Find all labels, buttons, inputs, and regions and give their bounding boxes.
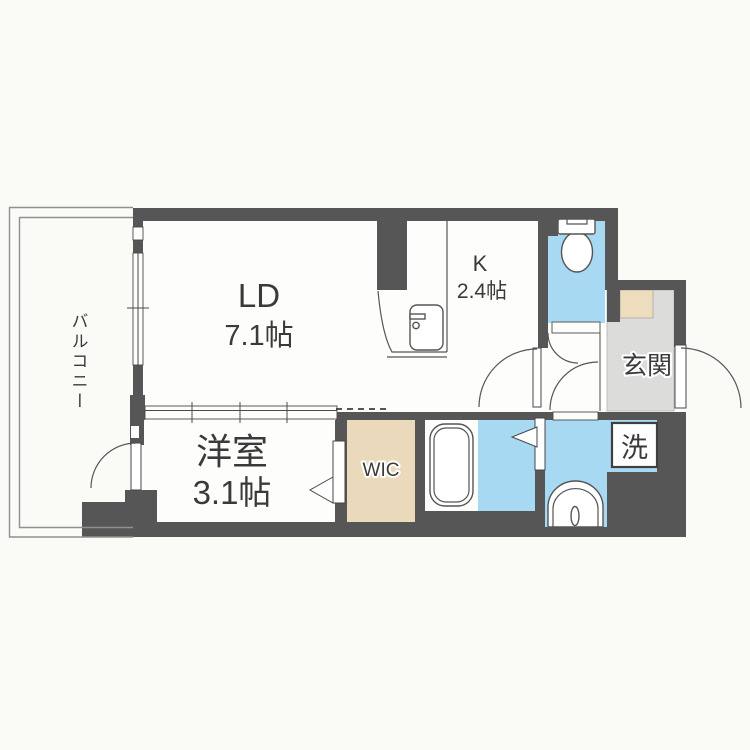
toilet-icon bbox=[562, 232, 593, 272]
wall-toilet-nub bbox=[548, 218, 558, 236]
washbasin-handle-icon bbox=[571, 507, 579, 526]
living-dining-size: 7.1帖 bbox=[224, 319, 293, 352]
bathtub-icon bbox=[430, 424, 473, 506]
wic-door-panel bbox=[333, 441, 345, 503]
sliding-door-icon bbox=[145, 406, 337, 419]
western-room-label: 洋室 bbox=[196, 431, 268, 472]
balcony-door-swing-arc bbox=[91, 443, 136, 488]
front-door-swing-arc bbox=[681, 348, 741, 408]
kitchen-faucet-knob-icon bbox=[413, 322, 419, 328]
wic-label: WIC bbox=[363, 460, 400, 481]
wall-balcony-block-2 bbox=[82, 502, 125, 537]
wall-right-block bbox=[657, 412, 686, 537]
wall-middle bbox=[336, 412, 686, 420]
balcony-label: バルコニー bbox=[69, 312, 88, 412]
entrance-label: 玄関 bbox=[622, 352, 672, 380]
wall-bottom-right bbox=[607, 472, 657, 537]
wall-toilet-right bbox=[605, 208, 618, 290]
wall-ld-kitchen bbox=[377, 221, 407, 290]
wall-entrance-stub bbox=[607, 290, 620, 322]
wall-kitchen-toilet bbox=[538, 208, 548, 348]
kitchen-label: K bbox=[473, 251, 488, 276]
laundry-label: 洗 bbox=[621, 433, 648, 463]
entrance-step-mat bbox=[620, 290, 653, 318]
wall-bottom-bath bbox=[415, 511, 545, 537]
kitchen-door-leaf bbox=[533, 348, 541, 407]
western-room-size: 3.1帖 bbox=[193, 474, 272, 511]
kitchen-faucet-icon bbox=[410, 314, 425, 319]
kitchen-size: 2.4帖 bbox=[457, 280, 507, 303]
wall-above-entrance bbox=[605, 280, 686, 290]
wall-wic-bath bbox=[415, 420, 425, 512]
wall-bottom-basin bbox=[545, 527, 607, 537]
washroom-doorway bbox=[553, 412, 598, 420]
toilet-doorway bbox=[552, 322, 600, 333]
wall-niche bbox=[131, 426, 139, 438]
living-dining-label: LD bbox=[238, 277, 280, 314]
wall-bottom-west bbox=[137, 522, 415, 537]
wall-bath-washroom bbox=[535, 470, 545, 512]
wall-corner-block bbox=[130, 395, 145, 420]
wall-entrance-right bbox=[674, 290, 686, 347]
toilet-tank-icon bbox=[558, 219, 595, 234]
small-window-icon bbox=[133, 227, 143, 240]
front-door-leaf bbox=[675, 345, 686, 408]
balcony-door-leaf bbox=[131, 443, 141, 490]
floor-plan: バルコニー LD 7.1帖 K 2.4帖 洋室 3.1帖 WIC 玄関 洗 bbox=[0, 0, 750, 750]
